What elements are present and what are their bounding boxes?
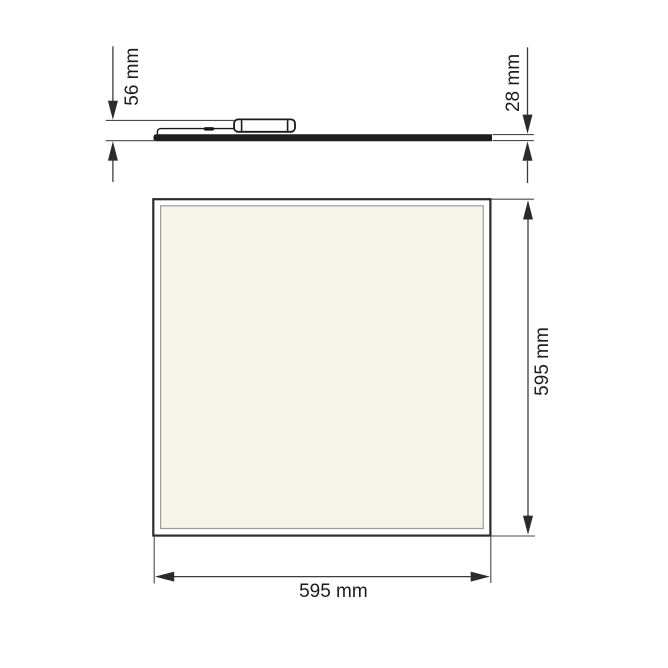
svg-text:595 mm: 595 mm — [532, 327, 553, 396]
svg-text:28 mm: 28 mm — [503, 54, 524, 112]
svg-text:56 mm: 56 mm — [122, 48, 143, 106]
svg-text:595 mm: 595 mm — [299, 581, 368, 602]
